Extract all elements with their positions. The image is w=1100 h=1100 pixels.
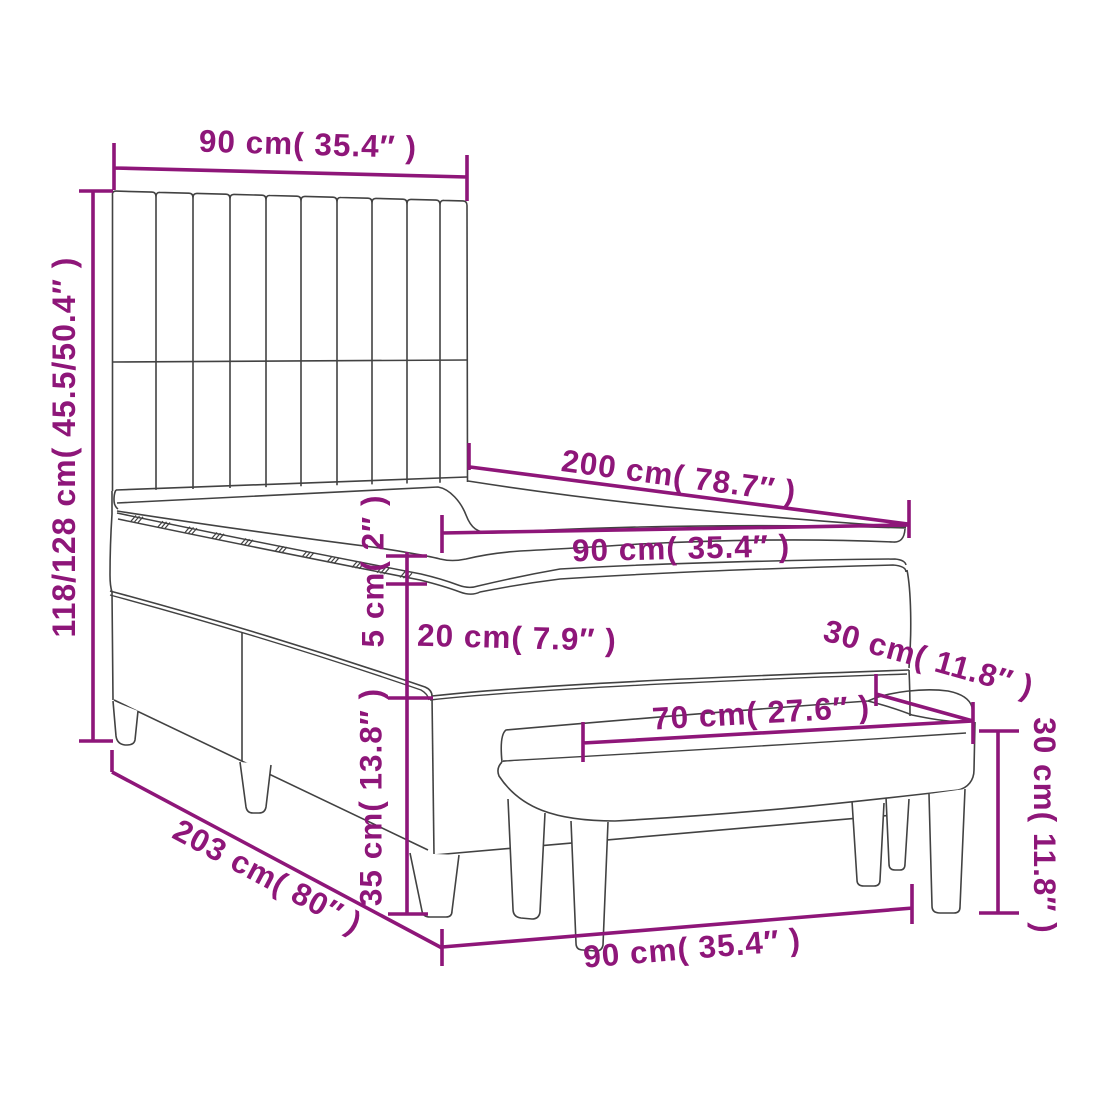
svg-text:5 cm( 2″ ): 5 cm( 2″ ) (354, 495, 390, 648)
svg-text:90 cm( 35.4″ ): 90 cm( 35.4″ ) (198, 123, 417, 165)
svg-text:20 cm( 7.9″ ): 20 cm( 7.9″ ) (417, 617, 618, 658)
svg-text:35 cm( 13.8″ ): 35 cm( 13.8″ ) (352, 688, 388, 906)
svg-text:90 cm( 35.4″ ): 90 cm( 35.4″ ) (572, 527, 791, 568)
svg-text:118/128 cm( 45.5/50.4″ ): 118/128 cm( 45.5/50.4″ ) (46, 257, 82, 638)
svg-text:30 cm( 11.8″ ): 30 cm( 11.8″ ) (1027, 717, 1063, 933)
